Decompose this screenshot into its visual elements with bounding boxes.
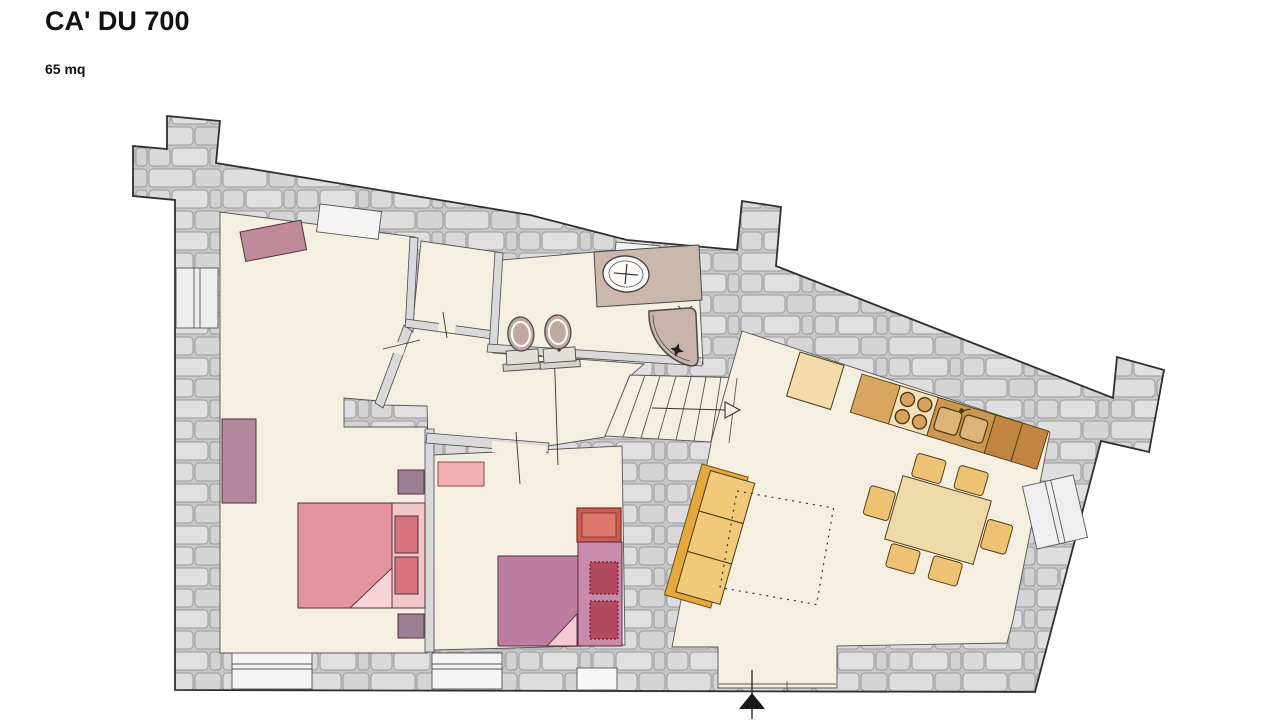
pillow xyxy=(395,516,418,553)
closet-floor xyxy=(413,241,497,332)
double-bed xyxy=(298,503,425,608)
wardrobe xyxy=(222,419,256,503)
chair-seat xyxy=(577,508,621,542)
floor-plan-svg xyxy=(0,0,1280,720)
single-bed-with-trundle xyxy=(498,542,622,646)
entrance-arrow-icon xyxy=(739,693,765,709)
nightstand-bottom xyxy=(398,614,424,638)
shelf xyxy=(438,462,484,486)
trundle-pillow xyxy=(590,562,618,594)
floor-plan-page: CA' DU 700 65 mq xyxy=(0,0,1280,720)
trundle-pillow xyxy=(590,601,618,639)
nightstand-top xyxy=(398,470,424,494)
pillow xyxy=(395,557,418,594)
